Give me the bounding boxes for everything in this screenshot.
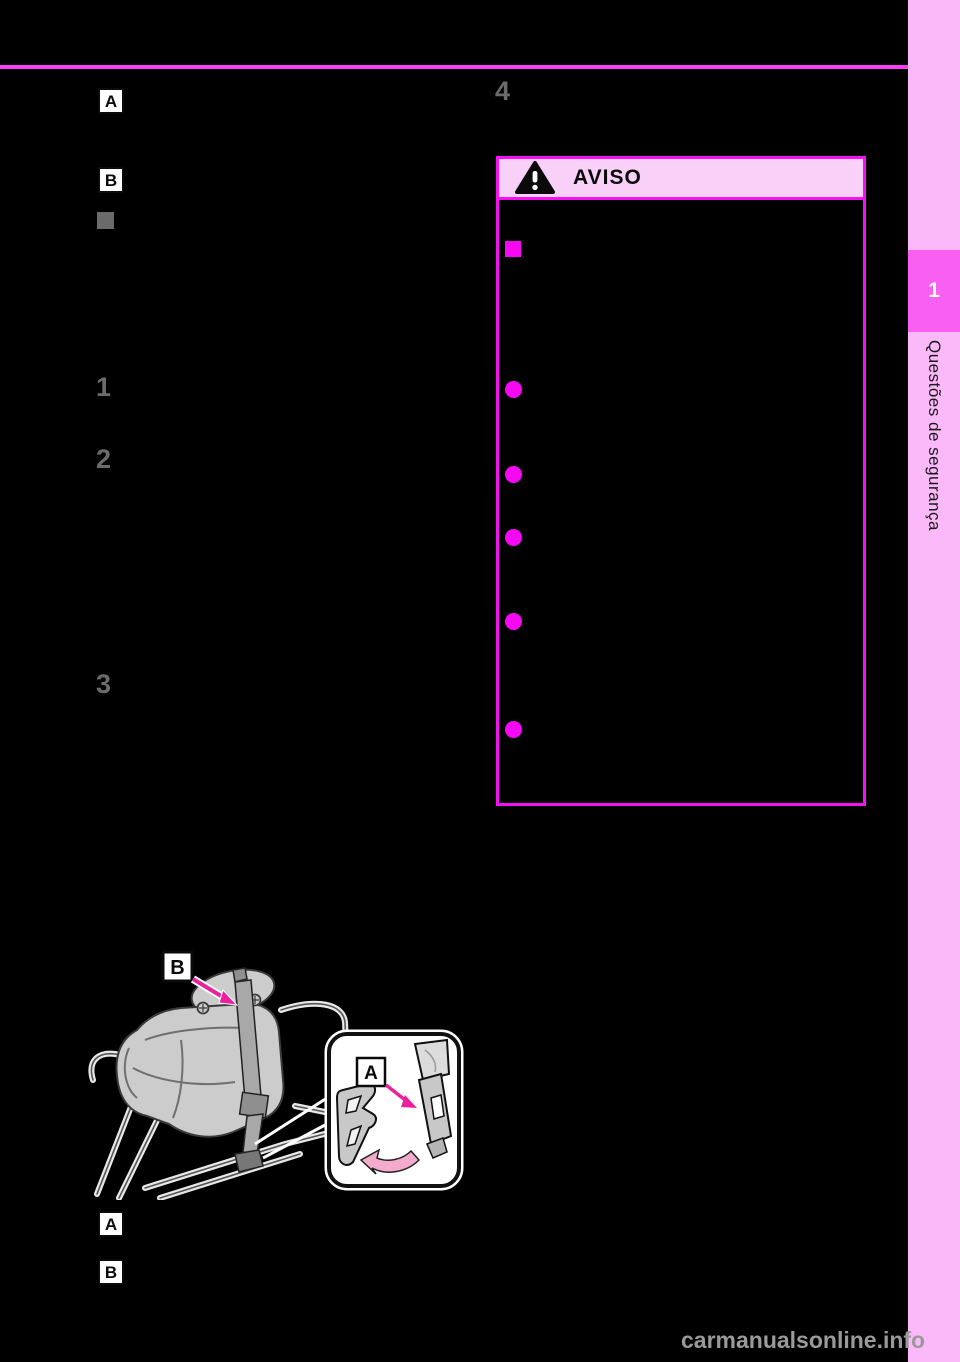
chapter-number: 1 (928, 279, 940, 303)
section-square-bullet (97, 212, 114, 229)
warning-bullet-circle (505, 613, 522, 630)
step-number-4: 4 (495, 78, 510, 105)
warning-bullet-circle (505, 381, 522, 398)
watermark-link[interactable]: carmanualsonline.info (681, 1327, 925, 1354)
chapter-title-vertical: Questões de segurança (908, 340, 960, 620)
callout-label-a: A (98, 88, 124, 114)
warning-bullet-circle (505, 529, 522, 546)
chapter-sidebar: 1 Questões de segurança (908, 0, 960, 1362)
label-a-glyph: A (364, 1063, 378, 1084)
legend-label-a: A (98, 1211, 124, 1237)
warning-bullet-circle (505, 721, 522, 738)
step-number-2: 2 (96, 446, 111, 473)
warning-title: AVISO (573, 166, 642, 190)
warning-box: AVISO (496, 156, 866, 806)
step-number-3: 3 (96, 671, 111, 698)
callout-label-b: B (98, 167, 124, 193)
callout-label-a-text: A (105, 93, 117, 110)
warning-header: AVISO (499, 159, 863, 200)
warning-triangle-icon (514, 160, 556, 196)
manual-page: 1 Questões de segurança A B 1 2 3 4 AVIS… (0, 0, 960, 1362)
warning-bullet-square (505, 241, 521, 257)
warning-body (499, 200, 863, 803)
child-seat-drawing: B (85, 948, 465, 1200)
child-seat-illustration: B (85, 948, 465, 1200)
buckle-inset: A (329, 1034, 459, 1186)
legend-label-b: B (98, 1259, 124, 1285)
legend-label-b-text: B (105, 1264, 117, 1281)
warning-bullet-circle (505, 466, 522, 483)
chapter-tab: 1 (908, 250, 960, 332)
label-b-glyph: B (170, 957, 184, 979)
top-divider-rule (0, 65, 908, 69)
callout-label-b-text: B (105, 172, 117, 189)
step-number-1: 1 (96, 374, 111, 401)
legend-label-a-text: A (105, 1216, 117, 1233)
